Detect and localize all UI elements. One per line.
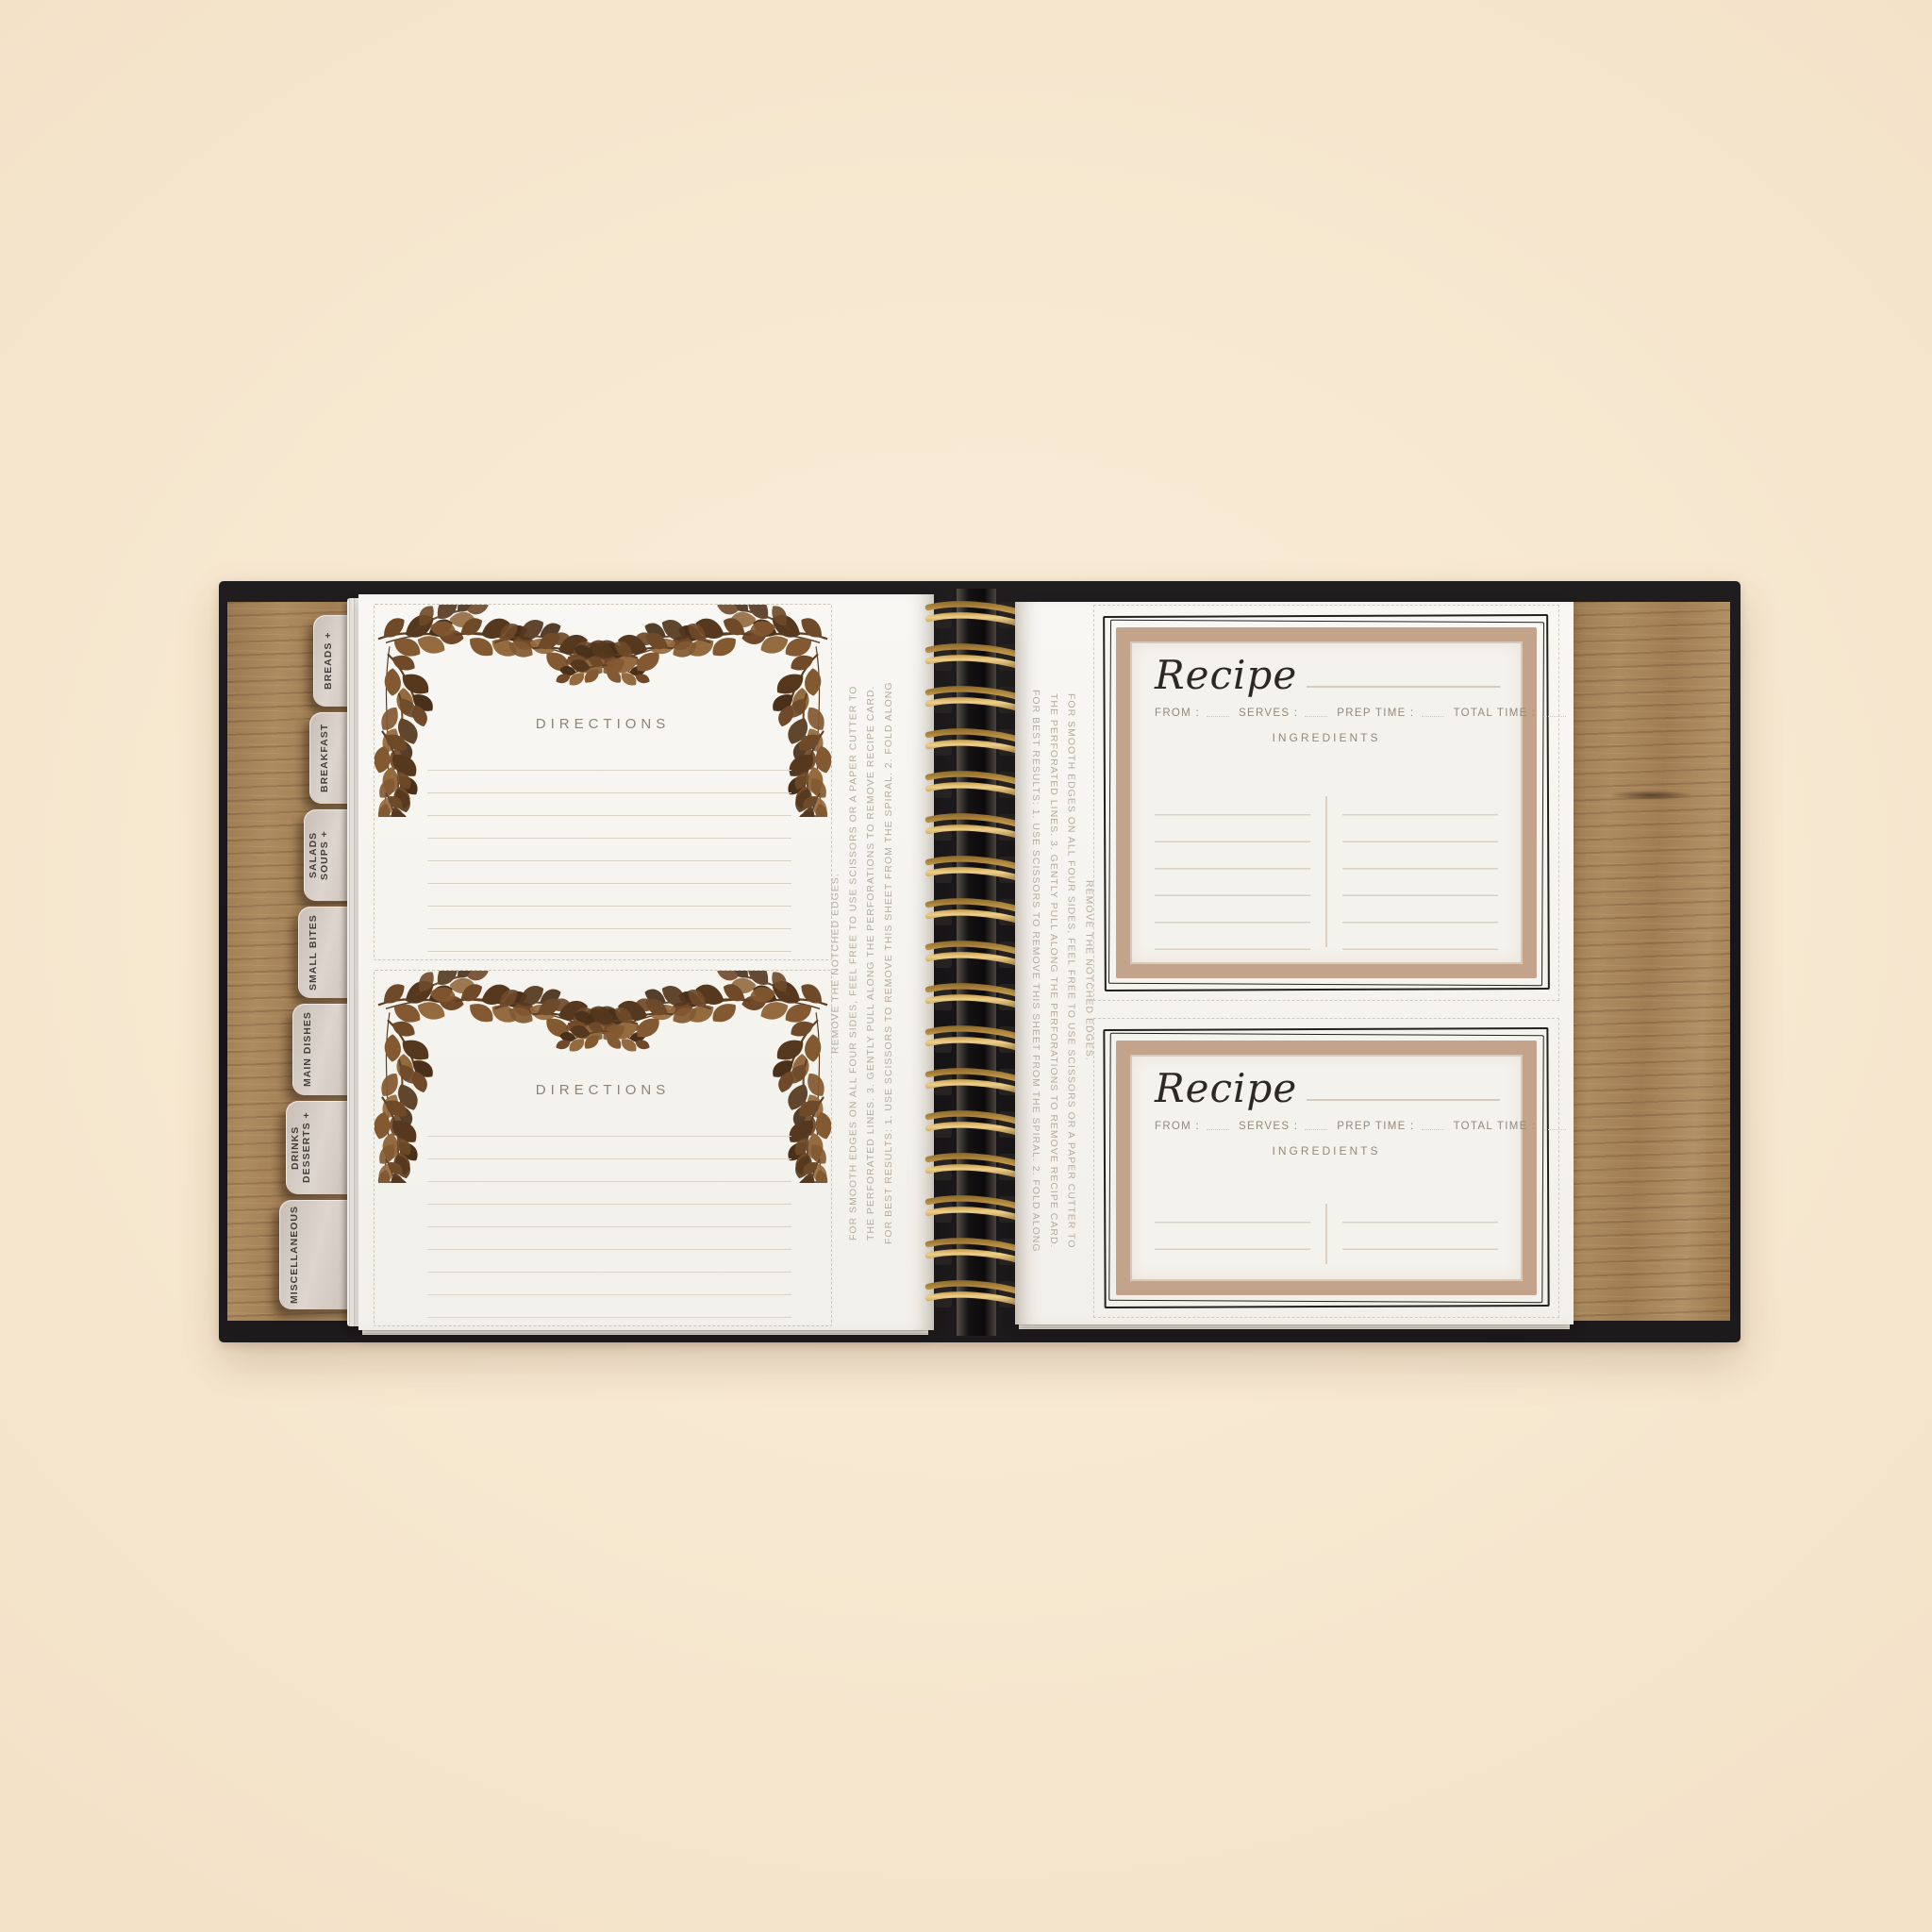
ingredients-columns (1155, 1196, 1498, 1268)
tab-label: SOUPS + SALADS (308, 809, 329, 901)
scene-background: BREADS + BREAKFAST SOUPS + SALADS SMALL … (0, 0, 1932, 1932)
fill-in-line (1543, 1129, 1566, 1130)
tab-label: MISCELLANEOUS (284, 1200, 305, 1309)
tear-out-instructions-left: FOR BEST RESULTS: 1. USE SCISSORS TO REM… (841, 674, 898, 1253)
fill-in-line (1422, 716, 1444, 717)
fill-in-line (1305, 1129, 1327, 1130)
from-label: FROM : (1155, 1121, 1200, 1132)
fill-in-line (1543, 716, 1566, 717)
tear-out-instructions-right: FOR BEST RESULTS: 1. USE SCISSORS TO REM… (1026, 685, 1083, 1257)
total-time-label: TOTAL TIME : (1454, 708, 1537, 719)
fill-in-line (1207, 716, 1229, 717)
watercolor-frame: Recipe FROM : SERVES : PREP TIME : TOTAL… (1116, 1041, 1537, 1295)
ingredients-columns (1155, 789, 1498, 951)
directions-card-1: DIRECTIONS (374, 604, 832, 960)
serves-label: SERVES : (1239, 708, 1298, 719)
prep-time-label: PREP TIME : (1337, 1121, 1414, 1132)
title-rule (1307, 686, 1500, 688)
prep-time-label: PREP TIME : (1337, 708, 1414, 719)
inside-cover-wood-right (1562, 602, 1730, 1321)
from-label: FROM : (1155, 708, 1200, 719)
ingredient-lines-right (1342, 1196, 1498, 1268)
fill-in-line (1207, 1129, 1229, 1130)
recipe-card-2: Recipe FROM : SERVES : PREP TIME : TOTAL… (1104, 1028, 1549, 1307)
serves-label: SERVES : (1239, 1121, 1298, 1132)
ingredients-heading: INGREDIENTS (1130, 731, 1523, 744)
ingredient-lines-left (1155, 789, 1310, 951)
tab-label: MAIN DISHES (297, 1004, 318, 1095)
fill-in-line (1305, 716, 1327, 717)
directions-card-2: DIRECTIONS (374, 970, 832, 1326)
recipe-meta-row: FROM : SERVES : PREP TIME : TOTAL TIME : (1155, 1121, 1500, 1132)
recipe-meta-row: FROM : SERVES : PREP TIME : TOTAL TIME : (1155, 708, 1500, 719)
ingredient-lines-left (1155, 1196, 1310, 1268)
tab-label: BREAKFAST (314, 712, 335, 804)
recipe-title: Recipe (1155, 655, 1297, 696)
wood-grain-knot (1592, 789, 1710, 802)
directions-title: DIRECTIONS (375, 1082, 831, 1098)
column-divider (1325, 796, 1327, 947)
writing-lines (427, 1114, 791, 1320)
tab-label: SMALL BITES (303, 907, 324, 998)
ingredient-lines-right (1342, 789, 1498, 951)
total-time-label: TOTAL TIME : (1454, 1121, 1537, 1132)
recipe-card-1: Recipe FROM : SERVES : PREP TIME : TOTAL… (1104, 615, 1549, 991)
writing-lines (427, 748, 791, 954)
directions-title: DIRECTIONS (375, 716, 831, 732)
right-page: FOR BEST RESULTS: 1. USE SCISSORS TO REM… (1015, 602, 1574, 1324)
recipe-title: Recipe (1155, 1068, 1297, 1109)
title-rule (1307, 1099, 1500, 1101)
ingredients-heading: INGREDIENTS (1130, 1144, 1523, 1158)
tab-label: DESSERTS + DRINKS (291, 1101, 311, 1194)
left-page: DIRECTIONS DIRECTIONS FOR BEST RESULTS: … (358, 594, 934, 1330)
watercolor-frame: Recipe FROM : SERVES : PREP TIME : TOTAL… (1116, 627, 1537, 978)
recipe-book: BREADS + BREAKFAST SOUPS + SALADS SMALL … (219, 581, 1740, 1342)
fill-in-line (1422, 1129, 1444, 1130)
tab-label: BREADS + (318, 615, 339, 707)
column-divider (1325, 1204, 1327, 1264)
spiral-binding (923, 589, 1028, 1336)
